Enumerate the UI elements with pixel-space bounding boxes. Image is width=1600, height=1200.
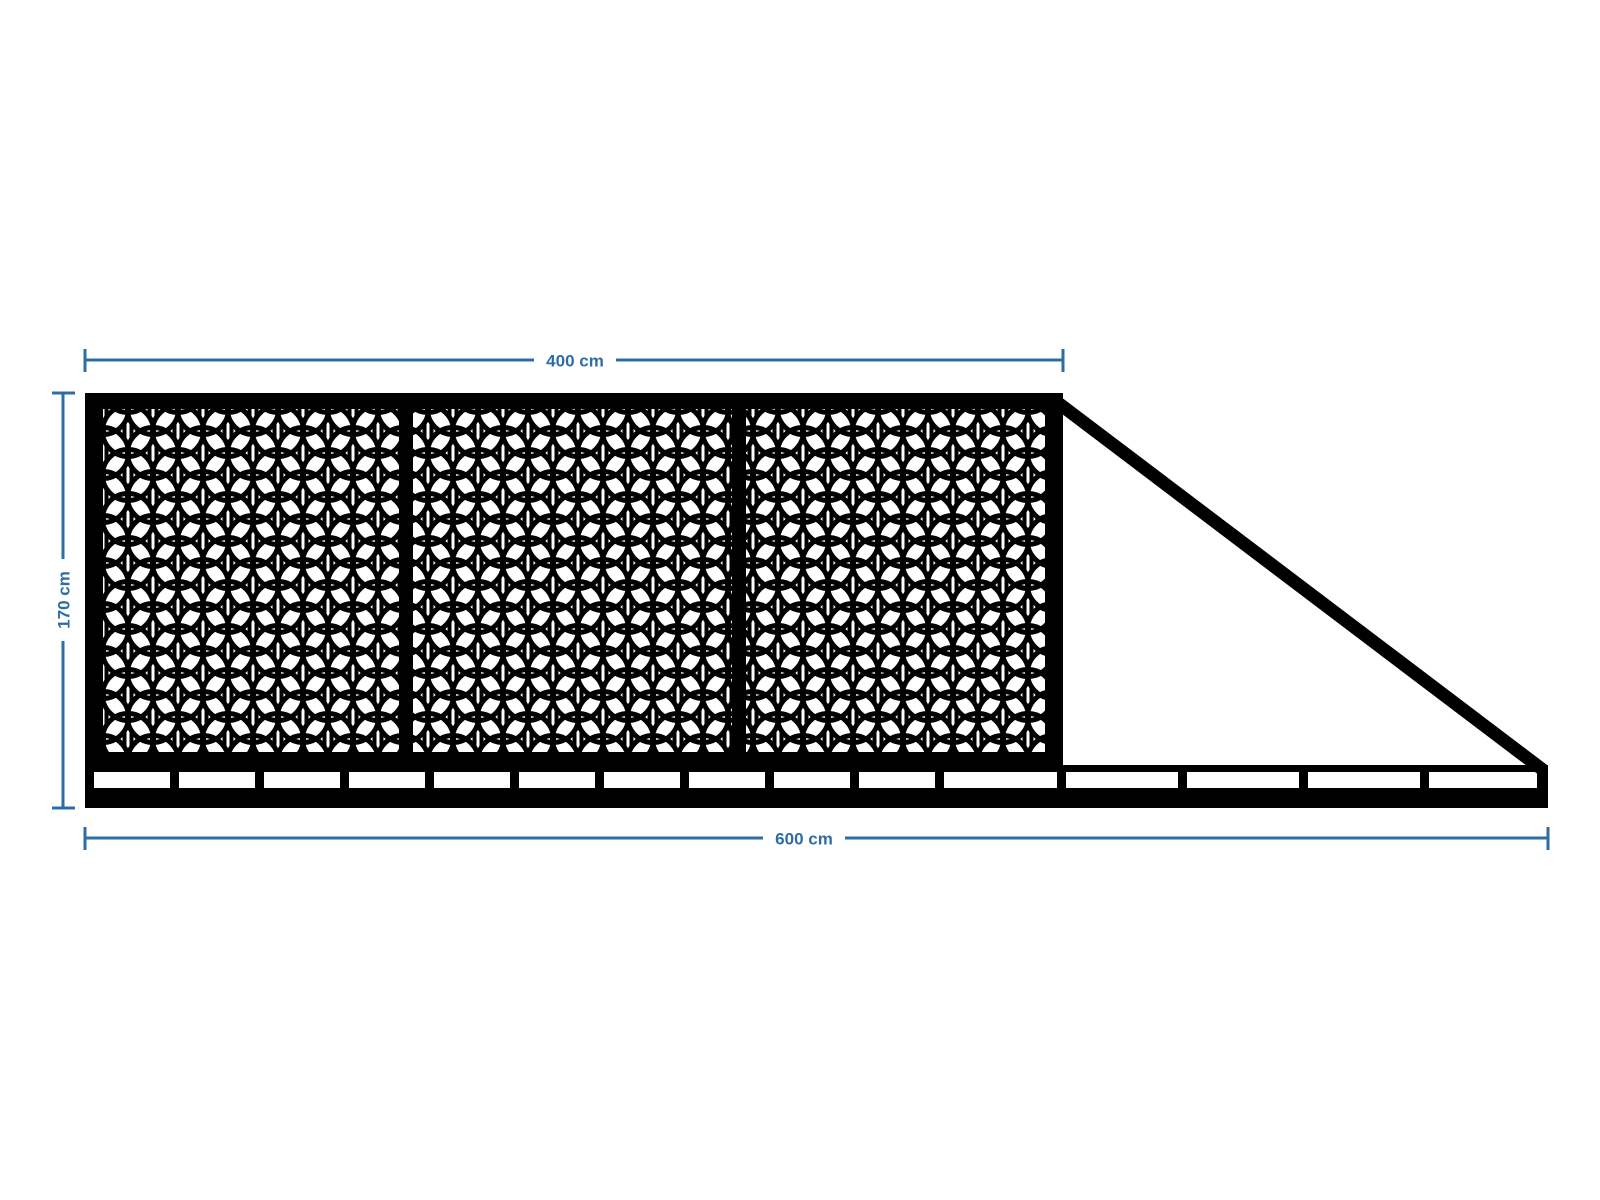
dimension-top-label: 400 cm xyxy=(546,352,604,371)
tail-diagonal-brace xyxy=(1053,399,1543,770)
gate-frame-right-post xyxy=(1045,393,1063,772)
rail-tick xyxy=(1057,772,1066,788)
rail-tick xyxy=(1299,772,1308,788)
tail-bottom-chord xyxy=(1063,765,1548,772)
rail-tick xyxy=(510,772,519,788)
rail-tick xyxy=(170,772,179,788)
rail-tick xyxy=(85,772,94,788)
gate-frame-bottom-rail xyxy=(85,752,1063,772)
rail-tick xyxy=(425,772,434,788)
rail-bottom-bar xyxy=(85,788,1548,808)
rail-tick xyxy=(255,772,264,788)
rail-tick xyxy=(765,772,774,788)
gate-frame-left-post xyxy=(85,393,103,772)
dimension-left-label: 170 cm xyxy=(55,571,74,629)
rail-tick xyxy=(1420,772,1429,788)
gate-mullion-2 xyxy=(732,409,746,752)
rail-tick xyxy=(1178,772,1187,788)
rail-end-cap xyxy=(1537,765,1548,788)
gate-frame-top-rail xyxy=(85,393,1063,409)
gate-mullion-1 xyxy=(399,409,413,752)
sliding-gate-diagram: 400 cm 600 cm 170 cm xyxy=(0,0,1600,1200)
dimension-bottom-label: 600 cm xyxy=(775,830,833,849)
drawing-canvas: 400 cm 600 cm 170 cm xyxy=(0,0,1600,1200)
rail-tick xyxy=(935,772,944,788)
rail-tick xyxy=(850,772,859,788)
rail-spacer-ticks xyxy=(85,772,1429,788)
rail-tick xyxy=(340,772,349,788)
counterbalance-tail xyxy=(1053,399,1548,772)
rail-tick xyxy=(680,772,689,788)
rail-tick xyxy=(595,772,604,788)
